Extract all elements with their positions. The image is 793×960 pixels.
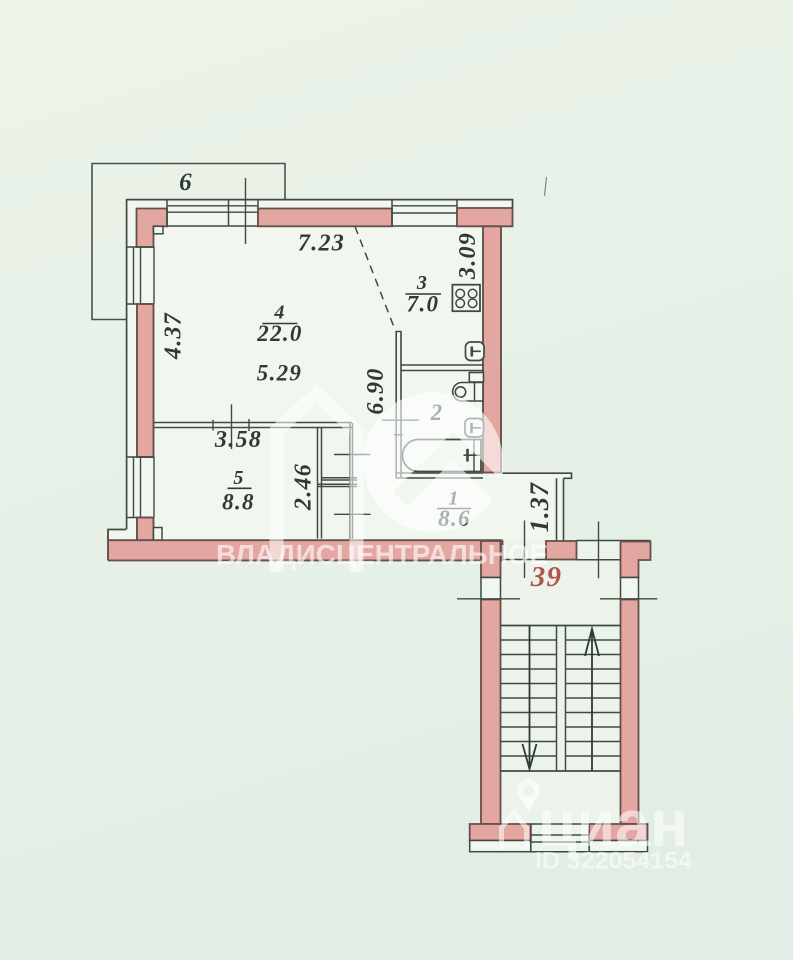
svg-text:ID 322054154: ID 322054154 xyxy=(535,848,693,875)
svg-text:7.0: 7.0 xyxy=(407,292,440,317)
svg-text:5.29: 5.29 xyxy=(257,361,302,386)
svg-text:5: 5 xyxy=(233,467,244,489)
svg-text:6: 6 xyxy=(179,169,193,196)
svg-text:22.0: 22.0 xyxy=(256,321,302,346)
svg-text:3.58: 3.58 xyxy=(214,427,262,453)
svg-text:2.46: 2.46 xyxy=(291,463,317,511)
svg-text:4.37: 4.37 xyxy=(161,312,187,360)
svg-text:1.37: 1.37 xyxy=(525,482,554,533)
svg-text:ВЛАДИСЦЕНТРАЛЬНОЕ: ВЛАДИСЦЕНТРАЛЬНОЕ xyxy=(216,539,548,570)
svg-text:8.8: 8.8 xyxy=(222,490,255,515)
svg-text:6.90: 6.90 xyxy=(363,367,389,414)
svg-text:7.23: 7.23 xyxy=(298,231,345,257)
svg-text:3.09: 3.09 xyxy=(455,232,481,280)
